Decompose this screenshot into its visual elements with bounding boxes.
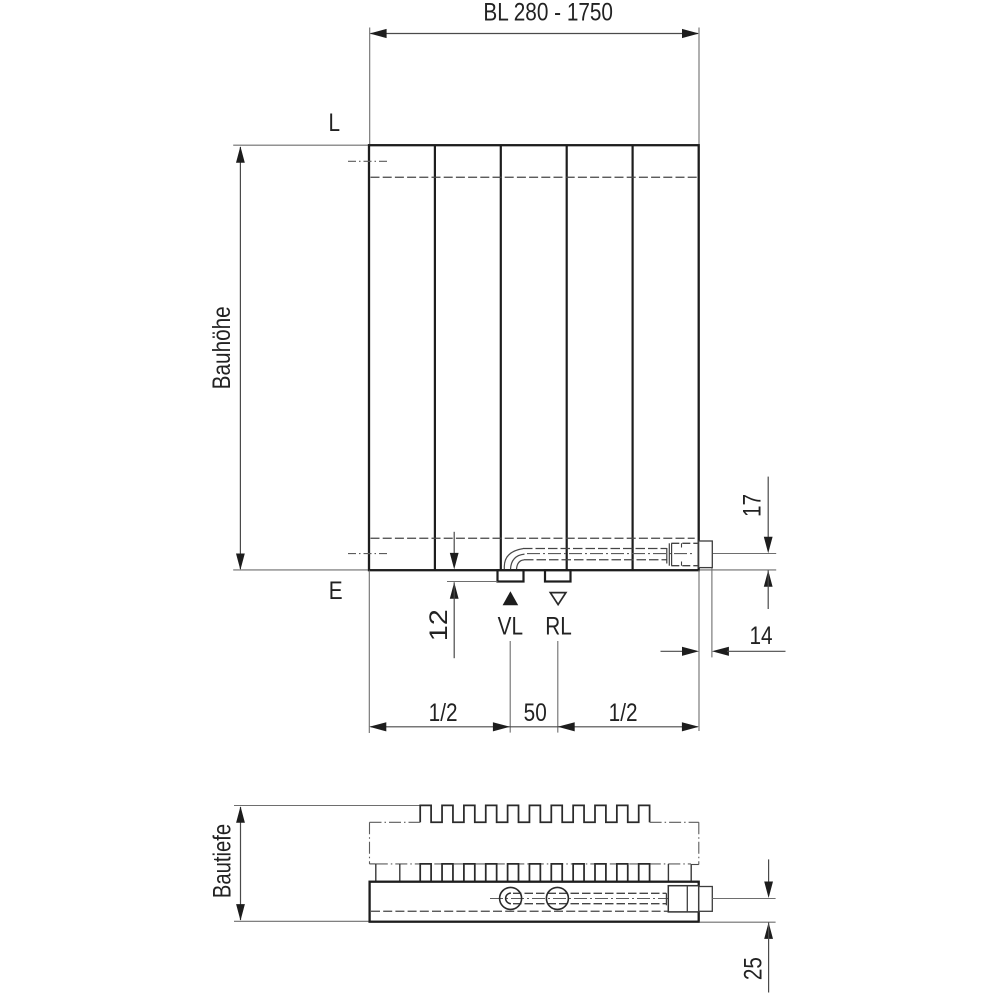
svg-text:BL 280 - 1750: BL 280 - 1750 [483,0,613,26]
svg-text:1/2: 1/2 [429,698,458,726]
svg-text:RL: RL [545,612,572,640]
svg-text:50: 50 [524,698,547,726]
svg-text:1/2: 1/2 [609,698,638,726]
svg-text:E: E [329,576,343,604]
svg-text:L: L [329,108,341,136]
svg-text:14: 14 [749,621,772,649]
svg-text:Bauhöhe: Bauhöhe [207,306,235,389]
svg-text:12: 12 [425,609,453,641]
svg-text:25: 25 [739,957,767,980]
svg-text:VL: VL [498,612,524,640]
svg-text:17: 17 [738,494,766,517]
svg-text:Bautiefe: Bautiefe [207,824,236,898]
